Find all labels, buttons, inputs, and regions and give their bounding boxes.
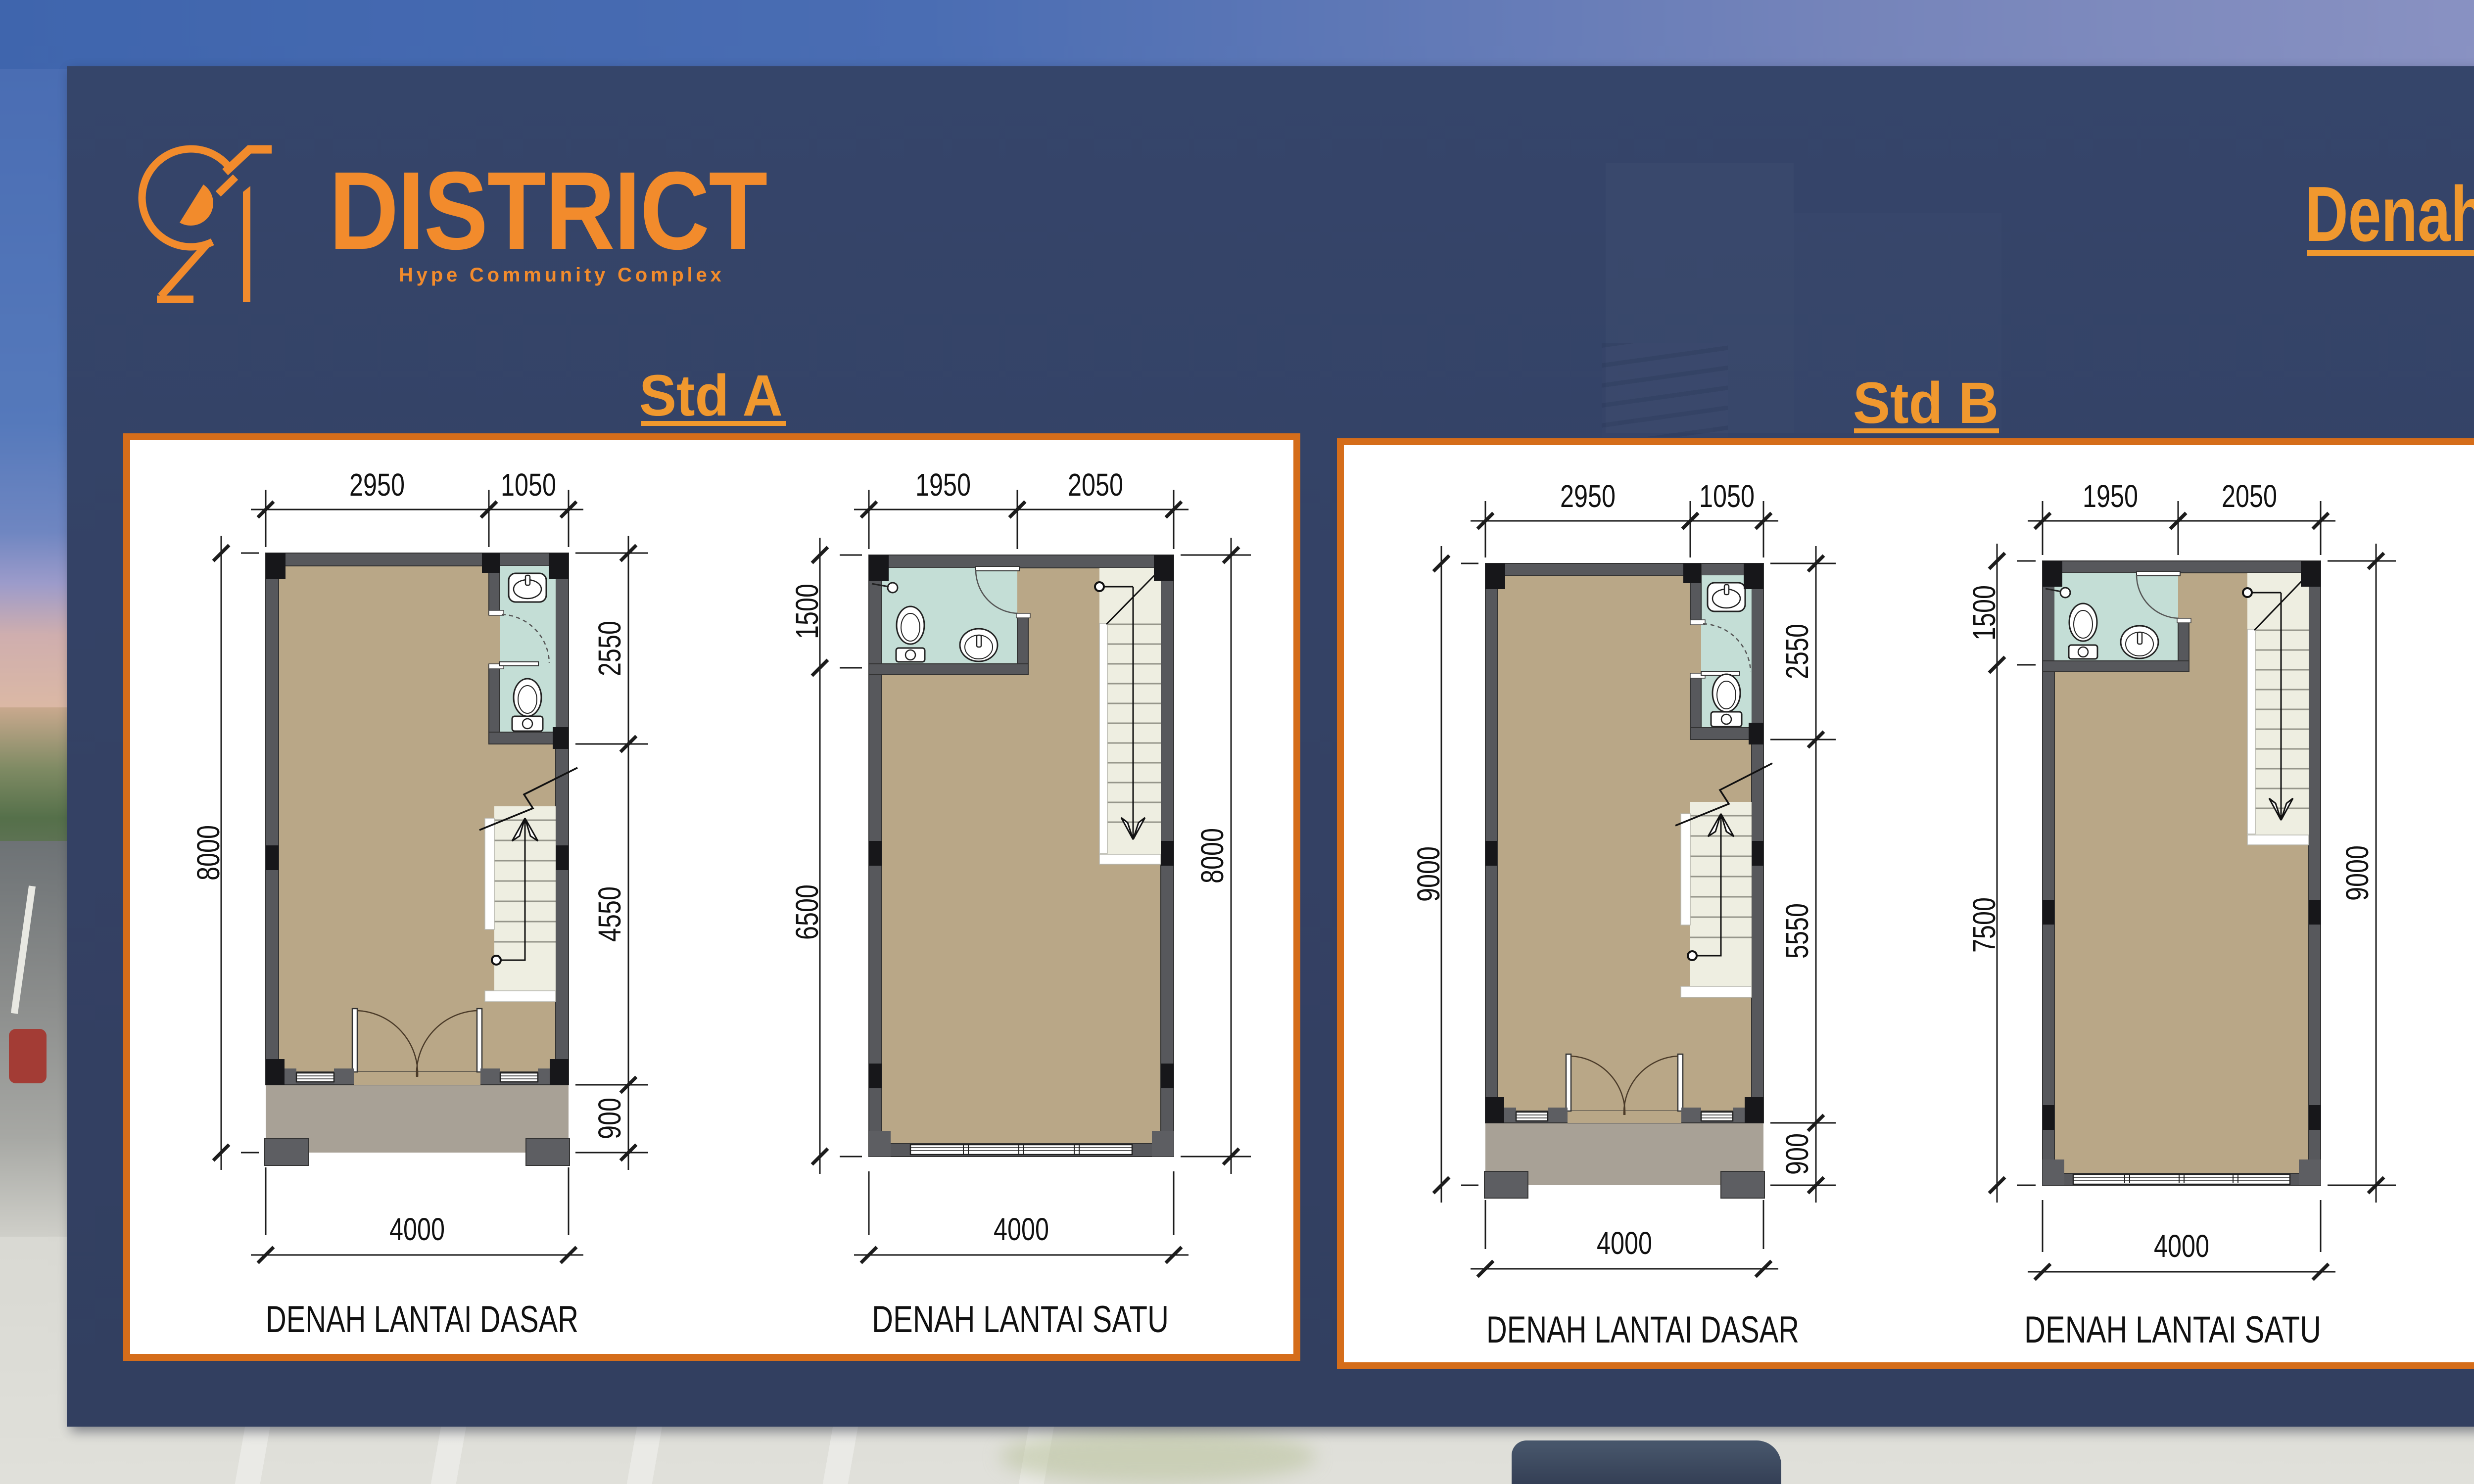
svg-text:900: 900: [1779, 1133, 1815, 1175]
svg-text:DENAH LANTAI SATU: DENAH LANTAI SATU: [2024, 1309, 2321, 1351]
svg-text:1500: 1500: [1966, 585, 2002, 641]
svg-text:2050: 2050: [2222, 478, 2277, 514]
svg-text:DENAH LANTAI DASAR: DENAH LANTAI DASAR: [266, 1298, 578, 1341]
svg-text:1950: 1950: [2083, 478, 2138, 514]
svg-text:9000: 9000: [2339, 845, 2375, 901]
svg-text:1050: 1050: [501, 467, 556, 503]
svg-text:DENAH LANTAI SATU: DENAH LANTAI SATU: [872, 1298, 1169, 1341]
svg-text:1050: 1050: [1699, 478, 1755, 514]
svg-text:900: 900: [592, 1098, 627, 1139]
svg-text:4000: 4000: [994, 1211, 1049, 1247]
svg-text:4000: 4000: [389, 1211, 445, 1247]
svg-text:4000: 4000: [1597, 1225, 1652, 1261]
svg-text:2550: 2550: [592, 621, 627, 676]
svg-text:8000: 8000: [190, 825, 226, 881]
svg-text:1500: 1500: [789, 584, 825, 639]
svg-text:2050: 2050: [1068, 467, 1123, 503]
svg-text:DENAH LANTAI DASAR: DENAH LANTAI DASAR: [1486, 1309, 1799, 1351]
svg-text:2950: 2950: [1560, 478, 1616, 514]
svg-text:7500: 7500: [1966, 897, 2002, 953]
svg-text:8000: 8000: [1194, 828, 1230, 883]
svg-text:4000: 4000: [2154, 1228, 2209, 1264]
svg-text:5550: 5550: [1779, 903, 1815, 959]
svg-text:1950: 1950: [915, 467, 971, 503]
svg-text:2550: 2550: [1779, 624, 1815, 679]
svg-text:4550: 4550: [592, 886, 627, 942]
svg-text:2950: 2950: [349, 467, 405, 503]
svg-text:6500: 6500: [789, 884, 825, 940]
svg-text:9000: 9000: [1411, 846, 1446, 902]
